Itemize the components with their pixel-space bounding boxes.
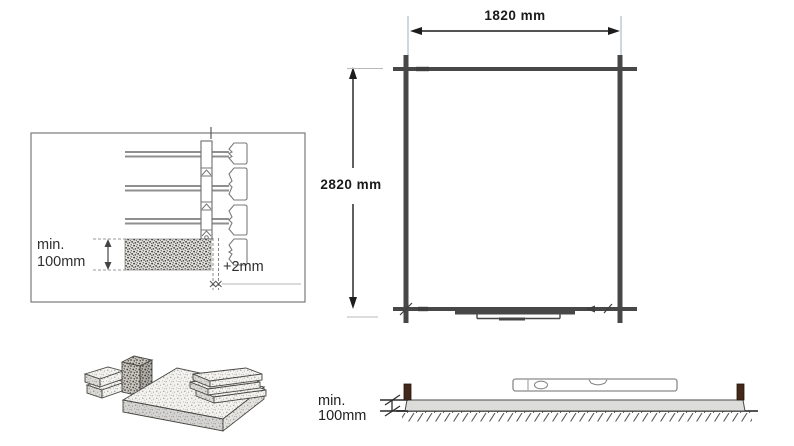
height-dimension-label: 2820 mm	[320, 177, 381, 192]
ground-hatch	[402, 412, 752, 422]
width-dimension-arrow	[410, 27, 620, 35]
floor-plan-diagram: 1820 mm	[290, 0, 690, 340]
plan-walls	[393, 55, 637, 323]
foundation-beam-detail-diagram: min. 100mm +2mm	[25, 118, 315, 310]
manual-page: 1820 mm	[0, 0, 794, 446]
materials-group	[85, 356, 266, 431]
width-dimension-label: 1820 mm	[484, 8, 545, 23]
slab-stack-right	[190, 368, 266, 403]
gap-tolerance-label: +2mm	[223, 259, 264, 275]
level-vial-end	[535, 381, 548, 389]
beam-min-height-label-line1: min.	[37, 237, 64, 253]
post-left	[404, 384, 411, 400]
post-right	[737, 384, 744, 400]
foundation-slab	[405, 400, 745, 411]
door-threshold	[455, 311, 575, 321]
foundation-side-view-diagram: min. 100mm	[308, 358, 794, 446]
assembly-marks	[400, 67, 612, 315]
corner-plank	[201, 141, 212, 239]
beam-min-height-label-line2: 100mm	[37, 254, 85, 270]
slab-min-height-label-line1: min.	[318, 393, 345, 409]
foundation-beam	[125, 239, 211, 270]
spirit-level	[513, 379, 677, 391]
slab-min-height-label-line2: 100mm	[318, 408, 366, 424]
detail-box-frame	[31, 133, 305, 302]
brick-stack-left	[85, 367, 125, 398]
paving-materials-illustration	[60, 338, 305, 446]
